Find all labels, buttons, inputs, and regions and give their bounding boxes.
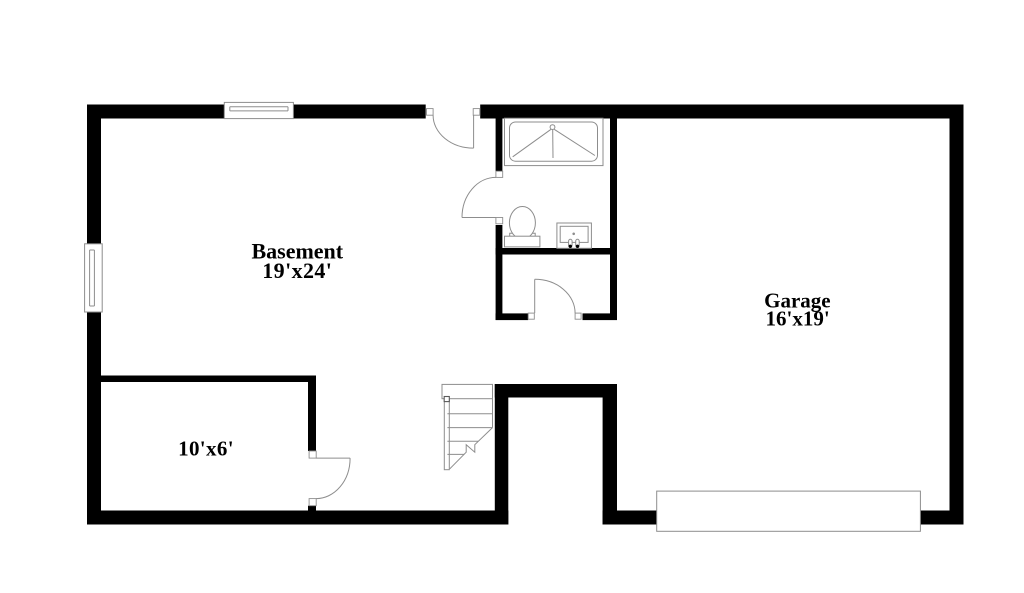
svg-text:16'x19': 16'x19' bbox=[766, 307, 830, 331]
svg-text:19'x24': 19'x24' bbox=[262, 258, 332, 283]
svg-text:10'x6': 10'x6' bbox=[178, 437, 234, 461]
